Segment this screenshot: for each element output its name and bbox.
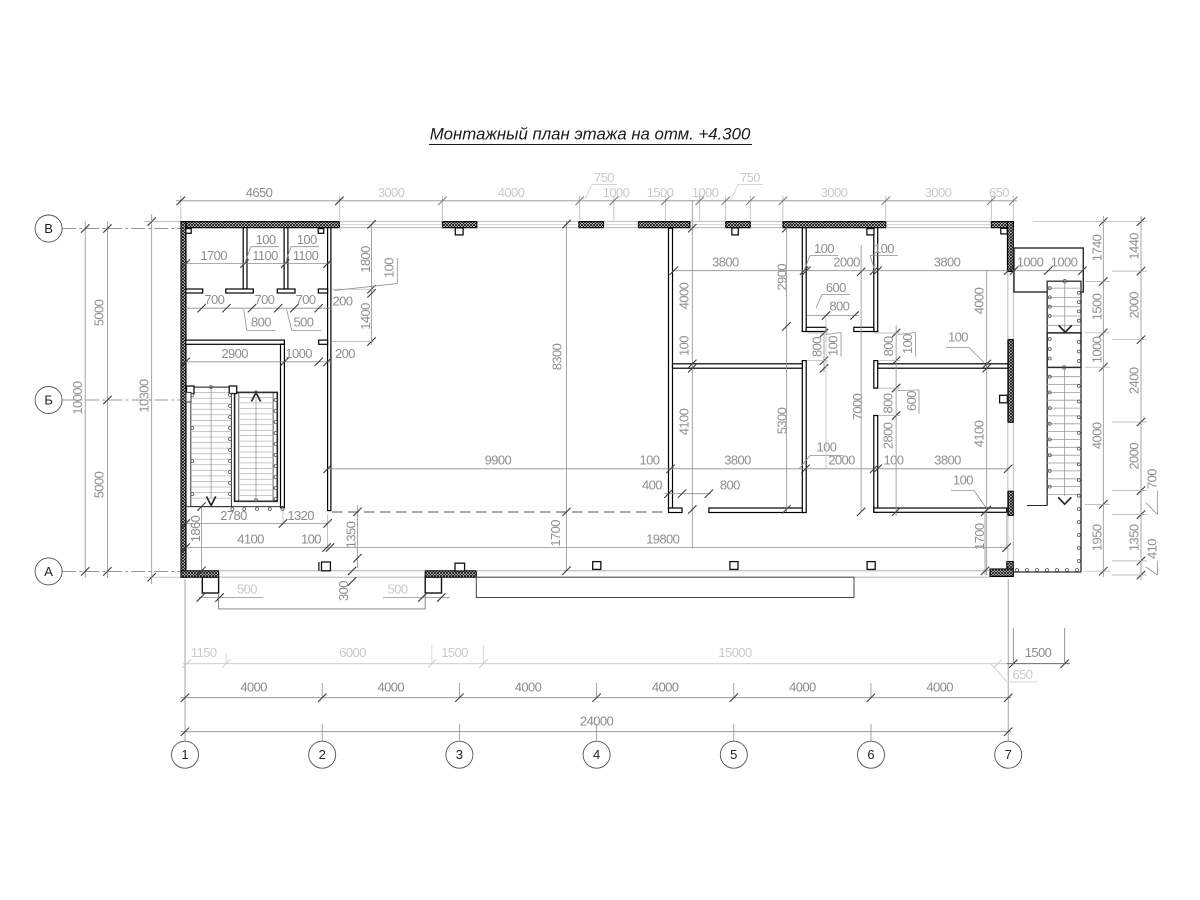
svg-text:7: 7 (1005, 747, 1012, 762)
svg-text:4000: 4000 (498, 185, 525, 200)
svg-text:800: 800 (881, 393, 896, 413)
svg-text:4000: 4000 (515, 680, 542, 695)
svg-text:650: 650 (1013, 667, 1033, 682)
svg-text:В: В (44, 221, 53, 236)
svg-text:4000: 4000 (926, 680, 953, 695)
svg-text:3800: 3800 (934, 453, 961, 468)
svg-text:1440: 1440 (1127, 233, 1142, 260)
svg-text:3000: 3000 (821, 185, 848, 200)
svg-text:200: 200 (333, 294, 353, 309)
svg-text:1350: 1350 (1127, 524, 1142, 551)
svg-text:19800: 19800 (646, 532, 680, 547)
svg-text:1500: 1500 (1090, 293, 1105, 320)
svg-text:5000: 5000 (92, 299, 107, 326)
svg-text:4000: 4000 (972, 287, 987, 314)
svg-text:2000: 2000 (1127, 292, 1142, 319)
svg-text:24000: 24000 (580, 714, 614, 729)
svg-text:1000: 1000 (1090, 336, 1105, 363)
svg-text:1320: 1320 (287, 508, 314, 523)
svg-text:1700: 1700 (200, 248, 227, 263)
svg-text:500: 500 (293, 315, 313, 330)
svg-text:100: 100 (817, 440, 837, 455)
svg-text:4100: 4100 (677, 408, 692, 435)
svg-text:3000: 3000 (378, 185, 405, 200)
svg-text:100: 100 (948, 330, 968, 345)
svg-text:1000: 1000 (1017, 255, 1044, 270)
svg-text:4650: 4650 (246, 185, 273, 200)
svg-text:5300: 5300 (774, 407, 789, 434)
svg-text:800: 800 (809, 337, 824, 357)
svg-text:Монтажный план этажа на отм. +: Монтажный план этажа на отм. +4.300 (430, 125, 751, 144)
svg-text:600: 600 (826, 280, 846, 295)
svg-text:800: 800 (829, 299, 849, 314)
svg-text:3800: 3800 (712, 255, 739, 270)
svg-text:1700: 1700 (548, 520, 563, 547)
svg-text:800: 800 (881, 336, 896, 356)
svg-text:4000: 4000 (652, 680, 679, 695)
svg-text:800: 800 (720, 478, 740, 493)
svg-text:2900: 2900 (774, 264, 789, 291)
svg-text:600: 600 (904, 391, 919, 411)
svg-text:100: 100 (826, 336, 841, 356)
svg-text:100: 100 (884, 453, 904, 468)
svg-text:100: 100 (640, 453, 660, 468)
svg-text:2780: 2780 (220, 508, 247, 523)
svg-text:100: 100 (953, 473, 973, 488)
svg-text:3800: 3800 (724, 453, 751, 468)
svg-text:4: 4 (593, 747, 600, 762)
svg-text:700: 700 (296, 292, 316, 307)
svg-text:100: 100 (382, 258, 397, 278)
svg-text:9900: 9900 (485, 453, 512, 468)
svg-text:100: 100 (900, 334, 915, 354)
svg-text:1500: 1500 (441, 645, 468, 660)
svg-text:500: 500 (388, 582, 408, 597)
svg-text:200: 200 (335, 346, 355, 361)
svg-text:1: 1 (181, 747, 188, 762)
svg-text:2: 2 (319, 747, 326, 762)
svg-text:650: 650 (989, 185, 1009, 200)
svg-text:4000: 4000 (677, 282, 692, 309)
svg-text:750: 750 (594, 170, 614, 185)
svg-text:100: 100 (874, 241, 894, 256)
svg-text:7000: 7000 (850, 393, 865, 420)
svg-text:100: 100 (297, 232, 317, 247)
svg-text:10300: 10300 (137, 379, 152, 413)
svg-text:700: 700 (204, 292, 224, 307)
svg-text:2000: 2000 (1127, 443, 1142, 470)
svg-text:410: 410 (1145, 539, 1160, 559)
svg-text:1400: 1400 (358, 303, 373, 330)
svg-text:А: А (44, 564, 53, 579)
svg-text:6000: 6000 (339, 645, 366, 660)
svg-text:3000: 3000 (925, 185, 952, 200)
svg-text:1100: 1100 (293, 248, 319, 263)
svg-text:2000: 2000 (833, 255, 860, 270)
svg-text:800: 800 (251, 315, 271, 330)
svg-text:1860: 1860 (188, 515, 203, 542)
svg-text:100: 100 (301, 532, 321, 547)
svg-text:4000: 4000 (789, 680, 816, 695)
svg-text:700: 700 (1145, 469, 1160, 489)
svg-text:2400: 2400 (1127, 367, 1142, 394)
svg-text:1740: 1740 (1090, 234, 1105, 261)
svg-text:1950: 1950 (1090, 524, 1105, 551)
svg-text:6: 6 (867, 747, 874, 762)
svg-text:4000: 4000 (240, 680, 267, 695)
svg-text:1500: 1500 (1025, 645, 1052, 660)
svg-text:750: 750 (740, 170, 760, 185)
svg-text:100: 100 (814, 241, 834, 256)
svg-text:5: 5 (730, 747, 737, 762)
svg-text:4100: 4100 (972, 420, 987, 447)
svg-text:1100: 1100 (252, 248, 278, 263)
svg-text:1000: 1000 (285, 346, 312, 361)
svg-text:1350: 1350 (344, 521, 359, 548)
svg-text:3800: 3800 (934, 255, 961, 270)
svg-text:2800: 2800 (881, 422, 896, 449)
svg-text:100: 100 (677, 336, 692, 356)
svg-text:1700: 1700 (972, 523, 987, 550)
svg-text:1150: 1150 (191, 645, 217, 660)
svg-text:1800: 1800 (358, 246, 373, 273)
svg-text:400: 400 (642, 478, 662, 493)
svg-text:Б: Б (44, 393, 53, 408)
svg-text:4000: 4000 (378, 680, 405, 695)
svg-text:4000: 4000 (1090, 422, 1105, 449)
svg-text:8300: 8300 (550, 343, 565, 370)
svg-text:300: 300 (336, 581, 351, 601)
svg-text:15000: 15000 (718, 645, 752, 660)
svg-text:10000: 10000 (70, 381, 85, 415)
svg-text:1000: 1000 (603, 185, 630, 200)
svg-text:1000: 1000 (692, 185, 719, 200)
svg-text:2900: 2900 (221, 346, 248, 361)
svg-text:500: 500 (237, 582, 257, 597)
svg-text:4100: 4100 (237, 532, 264, 547)
svg-text:1500: 1500 (647, 185, 674, 200)
svg-text:100: 100 (256, 232, 276, 247)
svg-text:5000: 5000 (92, 471, 107, 498)
svg-text:1000: 1000 (1051, 255, 1078, 270)
svg-text:3: 3 (456, 747, 463, 762)
svg-text:700: 700 (254, 292, 274, 307)
svg-text:2000: 2000 (828, 453, 855, 468)
